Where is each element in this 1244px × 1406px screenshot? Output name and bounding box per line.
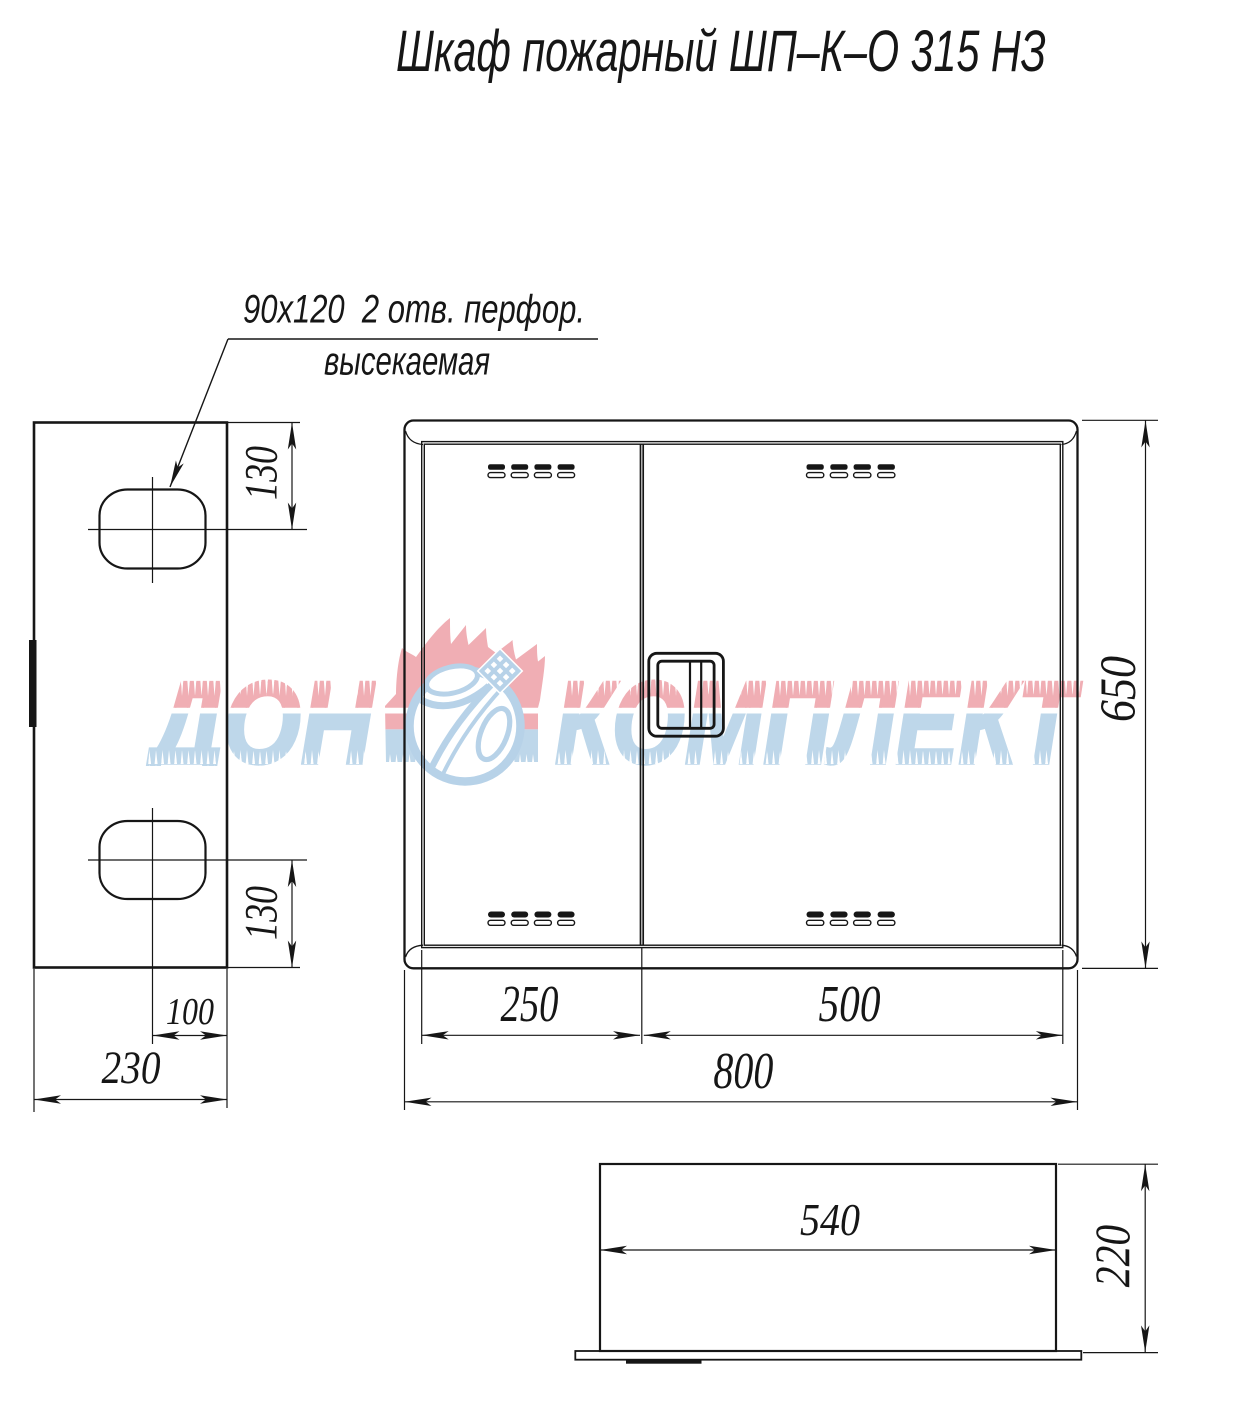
svg-text:90х120 2 отв. перфор.: 90х120 2 отв. перфор. (243, 288, 585, 332)
svg-text:высекаемая: высекаемая (324, 340, 490, 384)
svg-text:500: 500 (819, 976, 881, 1033)
svg-text:100: 100 (166, 991, 214, 1033)
svg-text:220: 220 (1084, 1225, 1140, 1288)
svg-text:250: 250 (501, 976, 559, 1033)
svg-text:800: 800 (713, 1043, 773, 1100)
svg-text:540: 540 (800, 1195, 860, 1245)
svg-text:230: 230 (102, 1042, 161, 1094)
svg-text:130: 130 (236, 886, 288, 940)
svg-text:Шкаф пожарный ШП–К–О 315 НЗ: Шкаф пожарный ШП–К–О 315 НЗ (396, 19, 1046, 84)
svg-text:650: 650 (1091, 656, 1147, 722)
svg-text:130: 130 (236, 446, 288, 500)
